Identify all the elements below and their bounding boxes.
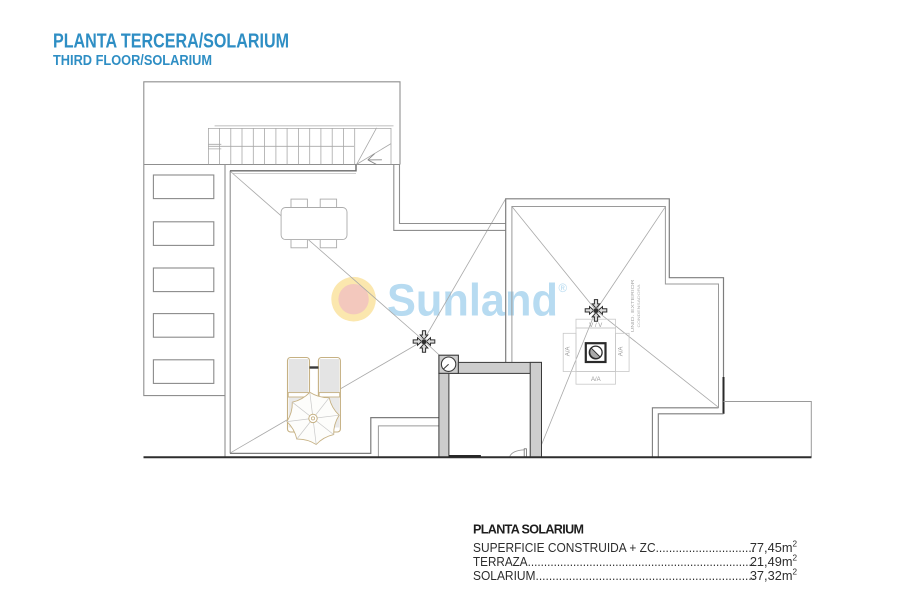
svg-text:A/A: A/A bbox=[591, 377, 601, 383]
svg-text:TERRAZA.......................: TERRAZA.................................… bbox=[473, 554, 755, 569]
svg-text:PLANTA TERCERA/SOLARIUM: PLANTA TERCERA/SOLARIUM bbox=[53, 31, 289, 53]
svg-text:CONDENSADORA: CONDENSADORA bbox=[636, 284, 641, 328]
svg-text:SUPERFICIE CONSTRUIDA + ZC....: SUPERFICIE CONSTRUIDA + ZC..............… bbox=[473, 540, 755, 555]
svg-text:77,45m: 77,45m bbox=[750, 540, 793, 555]
svg-text:37,32m: 37,32m bbox=[750, 568, 793, 583]
svg-text:2: 2 bbox=[793, 567, 798, 576]
svg-text:2: 2 bbox=[793, 539, 798, 548]
svg-text:V / V: V / V bbox=[589, 323, 602, 329]
svg-text:THIRD FLOOR/SOLARIUM: THIRD FLOOR/SOLARIUM bbox=[53, 53, 212, 69]
svg-text:21,49m: 21,49m bbox=[750, 554, 793, 569]
svg-text:Sunland: Sunland bbox=[387, 275, 558, 326]
svg-text:2: 2 bbox=[793, 553, 798, 562]
svg-text:PLANTA SOLARIUM: PLANTA SOLARIUM bbox=[473, 523, 584, 537]
svg-text:A/A: A/A bbox=[618, 347, 624, 357]
svg-text:®: ® bbox=[559, 283, 568, 295]
svg-text:A/A: A/A bbox=[566, 347, 572, 357]
svg-text:SOLARIUM......................: SOLARIUM................................… bbox=[473, 568, 755, 583]
